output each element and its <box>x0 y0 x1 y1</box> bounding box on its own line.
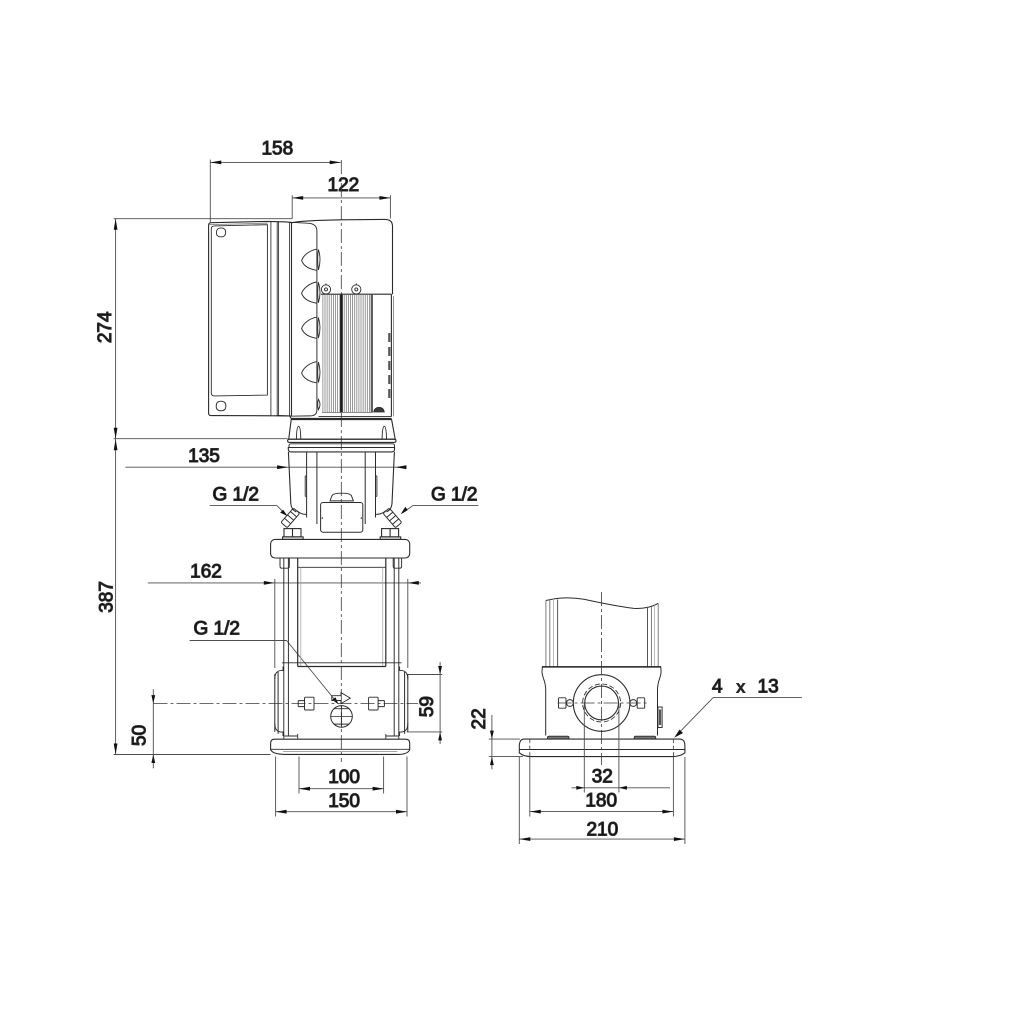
svg-text:x: x <box>737 677 746 696</box>
svg-text:135: 135 <box>188 446 220 467</box>
svg-text:G 1/2: G 1/2 <box>194 619 240 640</box>
svg-text:162: 162 <box>190 562 222 583</box>
svg-text:210: 210 <box>586 819 618 840</box>
svg-text:32: 32 <box>592 767 613 788</box>
svg-text:180: 180 <box>585 790 617 811</box>
svg-text:G 1/2: G 1/2 <box>213 485 259 506</box>
svg-text:158: 158 <box>261 138 293 159</box>
svg-text:100: 100 <box>328 767 360 788</box>
svg-text:59: 59 <box>417 696 438 717</box>
svg-text:4: 4 <box>712 676 723 697</box>
svg-text:22: 22 <box>469 708 490 729</box>
svg-text:G 1/2: G 1/2 <box>431 485 477 506</box>
svg-text:387: 387 <box>97 581 118 613</box>
svg-text:13: 13 <box>758 676 779 697</box>
svg-text:122: 122 <box>328 175 360 196</box>
svg-text:274: 274 <box>95 311 116 343</box>
svg-text:150: 150 <box>328 791 360 812</box>
svg-text:50: 50 <box>129 725 150 746</box>
